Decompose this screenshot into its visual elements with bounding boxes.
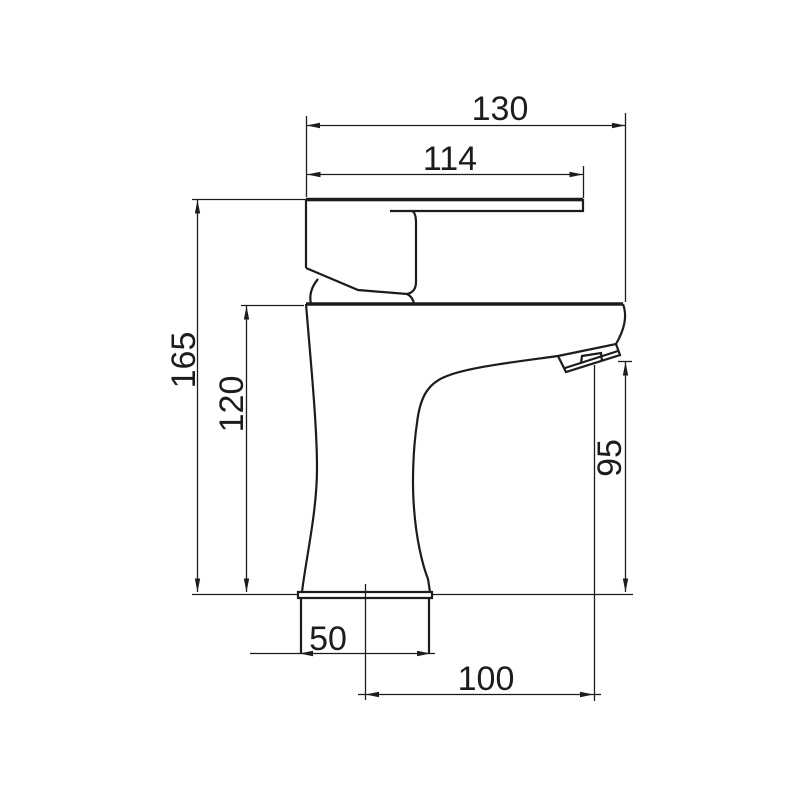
faucet-outline [298,200,625,701]
faucet-spout-underside [413,356,558,592]
dimension-handle-width: 114 [307,140,584,198]
arrowhead-left [366,692,380,697]
faucet-handle-outline [306,200,583,268]
arrowhead-bottom [623,579,628,593]
dimension-overall-width: 130 [307,90,626,302]
arrowhead-bottom [195,579,200,593]
arrowhead-right [612,123,626,128]
arrowhead-top [195,200,200,214]
arrowhead-top [623,362,628,376]
arrowhead-top [244,306,249,320]
technical-drawing-canvas: 130 114 165 120 [0,0,800,800]
dimension-label-95: 95 [591,439,629,477]
dimension-label-165: 165 [165,332,203,389]
dimension-label-50: 50 [309,620,347,658]
arrowhead-right [580,692,594,697]
faucet-dimension-drawing: 130 114 165 120 [0,0,800,800]
arrowhead-right [570,172,584,177]
dimension-label-114: 114 [423,140,477,178]
dimension-label-100: 100 [458,660,515,698]
dimension-body-height: 120 [213,306,304,593]
arrowhead-left [307,123,321,128]
faucet-spout-right-edge [616,304,625,344]
dimension-spout-reach: 100 [358,365,601,701]
faucet-handle-left-fillet [310,279,318,304]
dimension-spout-height: 95 [591,362,632,593]
faucet-handle-neck [306,211,416,294]
arrowhead-bottom [244,579,249,593]
faucet-body-left-edge [302,304,317,592]
dimension-label-130: 130 [472,90,529,128]
dimension-label-120: 120 [213,376,251,433]
arrowhead-left [307,172,321,177]
dimension-base-width: 50 [250,620,435,658]
